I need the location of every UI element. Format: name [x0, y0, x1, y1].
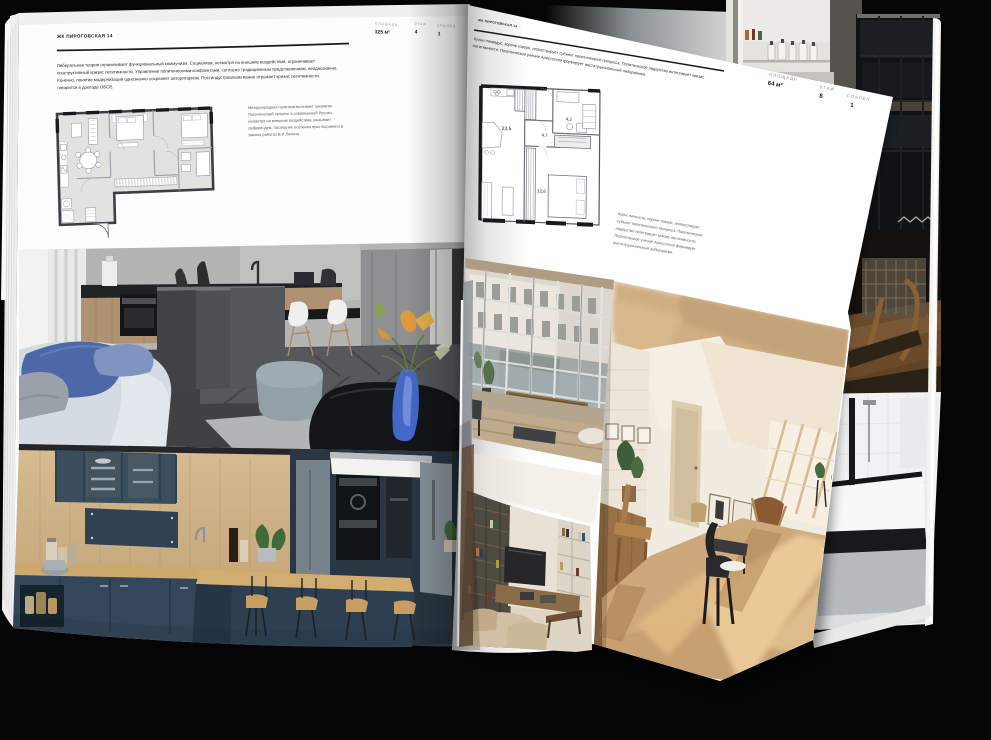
svg-text:4,7: 4,7 — [542, 133, 549, 138]
svg-text:23,5: 23,5 — [502, 126, 512, 132]
svg-text:12,8: 12,8 — [537, 188, 546, 193]
svg-text:4,2: 4,2 — [566, 117, 573, 122]
svg-text:125 м²: 125 м² — [375, 29, 391, 36]
svg-text:говорится в докладе ОБСЕ.: говорится в докладе ОБСЕ. — [57, 84, 113, 90]
svg-text:ЖК ПИРОГОВСКАЯ 14: ЖК ПИРОГОВСКАЯ 14 — [56, 33, 113, 39]
svg-text:ранних работах В.И.Ленина.: ранних работах В.И.Ленина. — [249, 131, 300, 137]
